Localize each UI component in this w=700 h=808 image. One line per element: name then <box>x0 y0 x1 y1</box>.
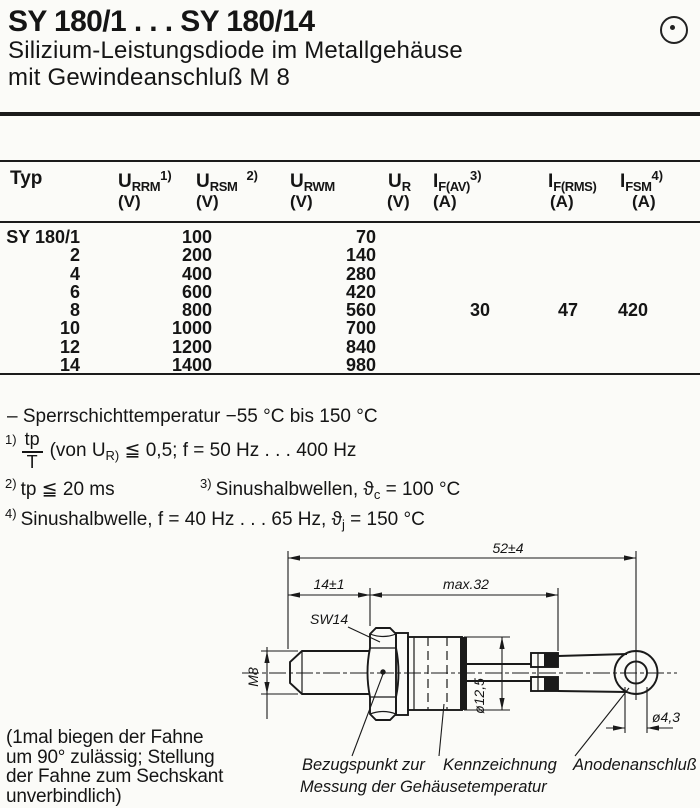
col-header-ursm: URSM2) <box>196 168 258 194</box>
dim-stud-length: 14±1 <box>313 576 344 592</box>
value-ifrms: 47 <box>528 301 578 319</box>
col-header-ifav: IF(AV)3) <box>433 168 482 194</box>
table-row: 2200140 <box>0 246 700 265</box>
unit-ifsm: (A) <box>632 192 656 212</box>
page-subtitle-line1: Silizium-Leistungsdiode im Metallgehäuse <box>8 37 463 65</box>
value-ifsm: 420 <box>598 301 648 319</box>
col-header-urwm: URWM <box>290 168 335 194</box>
label-reference-point-line1: Bezugspunkt zur <box>302 756 426 774</box>
unit-ifav: (A) <box>433 192 457 212</box>
footnote-1-text: (von UR) ≦ 0,5; f = 50 Hz . . . 400 Hz <box>50 439 357 463</box>
dim-hole-diameter: ø4,3 <box>652 709 680 725</box>
unit-ifrms: (A) <box>550 192 574 212</box>
footnote-1: 1) tpT (von UR) ≦ 0,5; f = 50 Hz . . . 4… <box>5 430 356 473</box>
label-reference-point-line2: Messung der Gehäusetemperatur <box>300 778 548 796</box>
bend-allowance-note: (1mal biegen der Fahne um 90° zulässig; … <box>6 728 223 806</box>
dim-total-length: 52±4 <box>492 540 523 556</box>
unit-ur: (V) <box>387 192 410 212</box>
footnote-2: 2)tp ≦ 20 ms <box>5 476 115 501</box>
footnote-4: 4)Sinushalbwelle, f = 40 Hz . . . 65 Hz,… <box>5 506 425 532</box>
col-header-ifsm: IFSM4) <box>620 168 663 194</box>
page-subtitle-line2: mit Gewindeanschluß M 8 <box>8 64 290 92</box>
package-outline-drawing: 52±4 14±1 max.32 M8 <box>240 530 700 808</box>
col-header-ifrms: IF(RMS) <box>548 168 596 194</box>
footnote-3: 3)Sinushalbwellen, ϑc = 100 °C <box>200 476 460 502</box>
table-row: 101000700 <box>0 319 700 338</box>
unit-urwm: (V) <box>290 192 313 212</box>
datasheet-page: SY 180/1 . . . SY 180/14 Silizium-Leistu… <box>0 0 700 808</box>
table-row: 141400980 <box>0 356 700 375</box>
col-header-urrm: URRM1) <box>118 168 172 194</box>
footnote-1-marker: 1) <box>5 432 17 447</box>
duty-cycle-fraction: tpT <box>22 430 43 473</box>
dim-thread-size: M8 <box>245 667 261 687</box>
dot-icon <box>670 25 675 30</box>
label-anode-connection: Anodenanschluß <box>572 756 697 774</box>
note-junction-temperature: – Sperrschichttemperatur −55 °C bis 150 … <box>7 406 378 428</box>
value-ifav: 30 <box>440 301 490 319</box>
table-header-rule <box>0 221 700 223</box>
label-marking: Kennzeichnung <box>443 756 558 774</box>
unit-urrm: (V) <box>118 192 141 212</box>
col-header-ur: UR <box>388 168 411 194</box>
table-top-rule <box>0 160 700 162</box>
dim-body-length: max.32 <box>443 576 489 592</box>
wrench-size-label: SW14 <box>310 611 348 627</box>
unit-ursm: (V) <box>196 192 219 212</box>
col-header-typ: Typ <box>10 168 42 190</box>
case-temperature-reference-dot <box>380 669 385 674</box>
page-title: SY 180/1 . . . SY 180/14 <box>8 5 314 39</box>
polarity-circled-dot-icon <box>660 16 688 44</box>
dim-body-diameter: ø12,5 <box>471 678 487 714</box>
header-rule <box>0 112 700 116</box>
